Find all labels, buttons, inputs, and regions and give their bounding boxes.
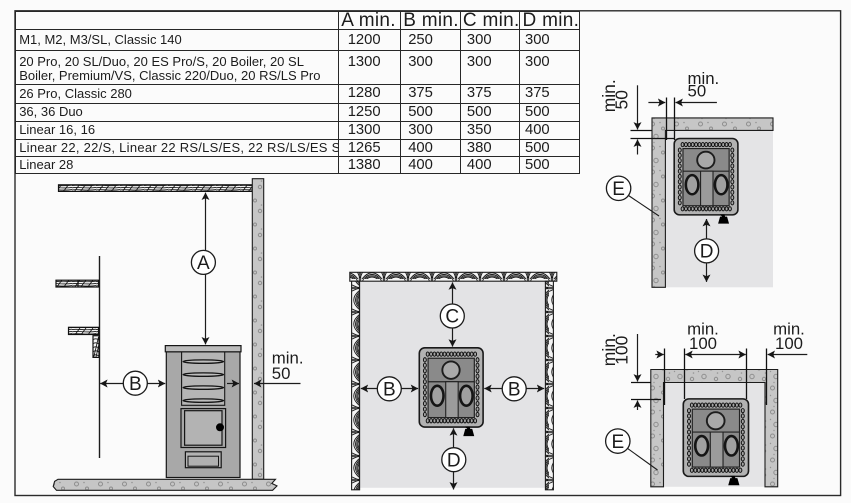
svg-text:E: E [612,179,625,200]
svg-text:100: 100 [775,334,803,353]
svg-text:D: D [447,450,461,471]
svg-text:50: 50 [272,364,291,383]
svg-text:B: B [129,374,142,395]
svg-text:50: 50 [688,82,707,101]
svg-text:100: 100 [689,334,717,353]
svg-text:D: D [700,242,714,263]
svg-text:C: C [445,307,459,328]
svg-text:100: 100 [611,335,631,364]
svg-text:A: A [197,253,210,274]
svg-text:B: B [508,380,521,401]
svg-text:50: 50 [611,90,631,110]
svg-text:B: B [383,380,396,401]
svg-text:E: E [611,432,624,453]
